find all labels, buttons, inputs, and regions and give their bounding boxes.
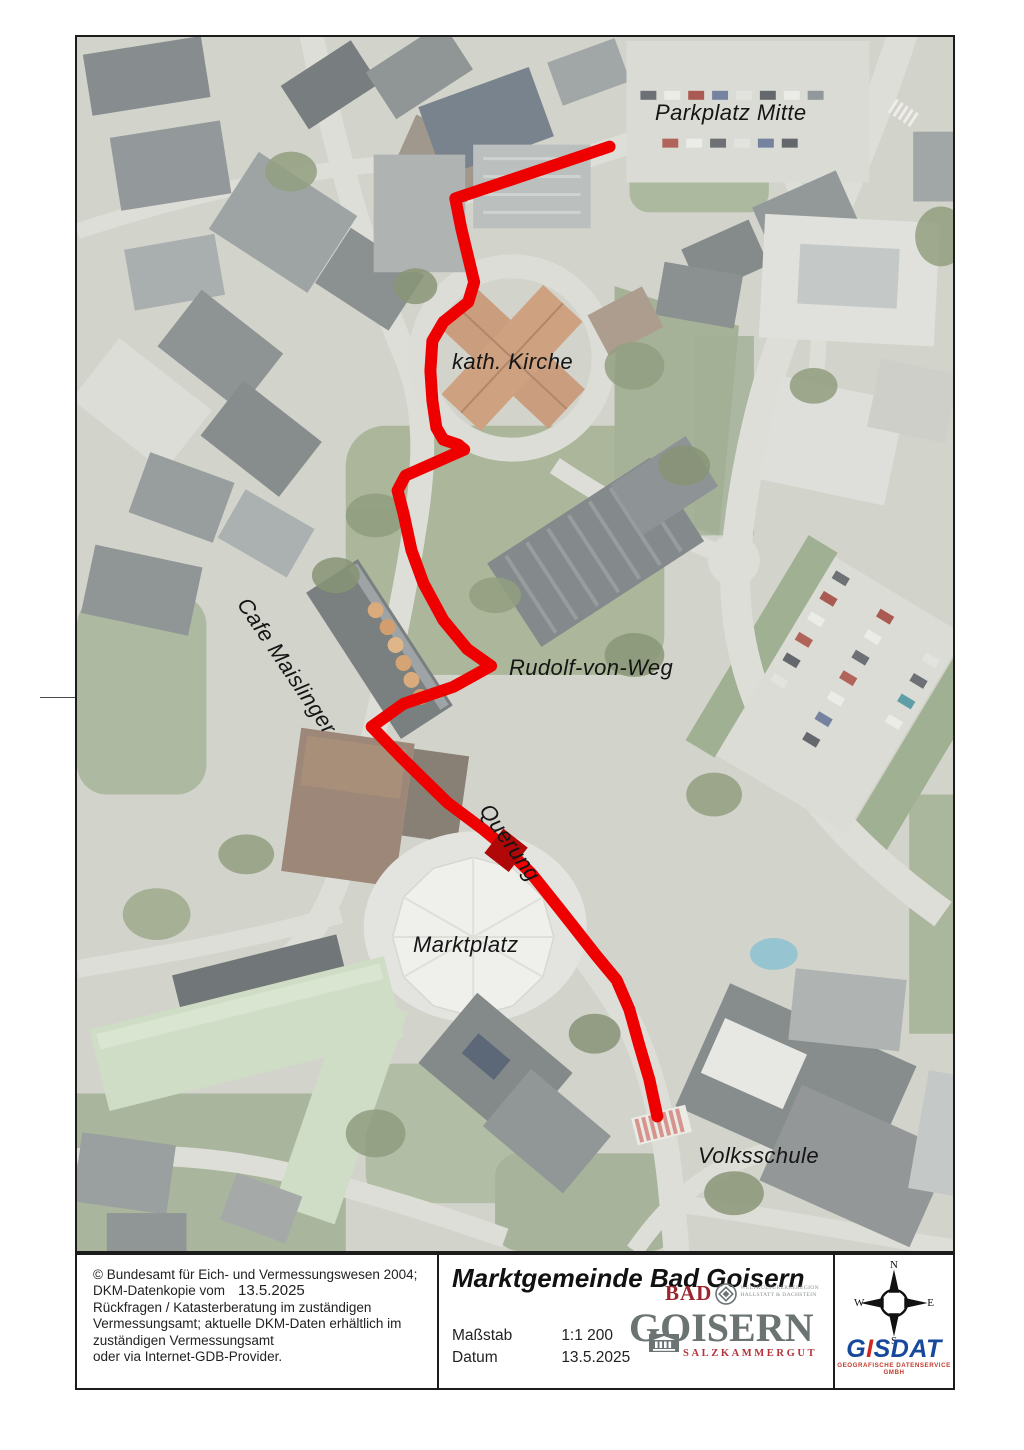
map-labels: Parkplatz Mittekath. KircheCafe Maisling… <box>77 37 953 1251</box>
heritage-text: WELTKULTURERBEREGION HALLSTATT & DACHSTE… <box>740 1283 819 1298</box>
date-value: 13.5.2025 <box>561 1349 630 1366</box>
gisdat-logo: GISDAT GEOGRAFISCHE DATENSERVICE GMBH <box>835 1337 953 1376</box>
map-label-querung: Querung <box>474 799 546 886</box>
logo-salzkammergut: SALZKAMMERGUT <box>683 1348 817 1359</box>
copyright-line: Rückfragen / Katasterberatung im zuständ… <box>93 1300 427 1316</box>
compass-north: N <box>890 1259 898 1271</box>
map-label-kath-kirche: kath. Kirche <box>452 349 573 375</box>
compass-east: E <box>927 1297 934 1309</box>
compass-rose-icon: N S W E <box>852 1261 936 1345</box>
map-label-marktplatz: Marktplatz <box>413 932 518 958</box>
copyright-line: zuständigen Vermessungsamt <box>93 1333 427 1349</box>
copyright-line: © Bundesamt für Eich- und Vermessungswes… <box>93 1267 427 1283</box>
gisdat-name: GISDAT <box>835 1337 953 1361</box>
scale-value: 1:1 200 <box>561 1327 613 1344</box>
compass-box: N S W E GISDAT GEOGRAFISCHE DATENSERVICE… <box>833 1253 955 1390</box>
bad-goisern-logo: BAD WELTKULTURERBEREGION HALLSTATT & DAC… <box>629 1283 825 1366</box>
copyright-line: oder via Internet-GDB-Provider. <box>93 1349 427 1365</box>
map-label-rudolf-von-weg: Rudolf-von-Weg <box>509 655 673 681</box>
copyright-line: DKM-Datenkopie vom13.5.2025 <box>93 1283 427 1299</box>
map-label-parkplatz-mitte: Parkplatz Mitte <box>655 100 807 126</box>
date-label: Datum <box>452 1349 557 1367</box>
scale-row: Maßstab 1:1 200 <box>452 1327 613 1345</box>
compass-west: W <box>854 1297 864 1309</box>
unesco-temple-icon <box>649 1334 679 1357</box>
gisdat-subtitle: GEOGRAFISCHE DATENSERVICE GMBH <box>835 1362 953 1376</box>
map-label-volksschule: Volksschule <box>698 1143 819 1169</box>
copyright-box: © Bundesamt für Eich- und Vermessungswes… <box>75 1253 439 1390</box>
copyright-line: Vermessungsamt; aktuelle DKM-Daten erhäl… <box>93 1316 427 1332</box>
logo-bad: BAD <box>665 1283 712 1303</box>
map-sheet: Parkplatz Mittekath. KircheCafe Maisling… <box>0 0 1024 1450</box>
date-row: Datum 13.5.2025 <box>452 1349 630 1367</box>
map-label-cafe-maislinger: Cafe Maislinger <box>231 593 341 739</box>
fold-mark <box>40 697 75 698</box>
data-copy-date: 13.5.2025 <box>238 1282 305 1299</box>
scale-label: Maßstab <box>452 1327 557 1345</box>
title-box: Marktgemeinde Bad Goisern Maßstab 1:1 20… <box>437 1253 835 1390</box>
aerial-map: Parkplatz Mittekath. KircheCafe Maisling… <box>75 35 955 1253</box>
